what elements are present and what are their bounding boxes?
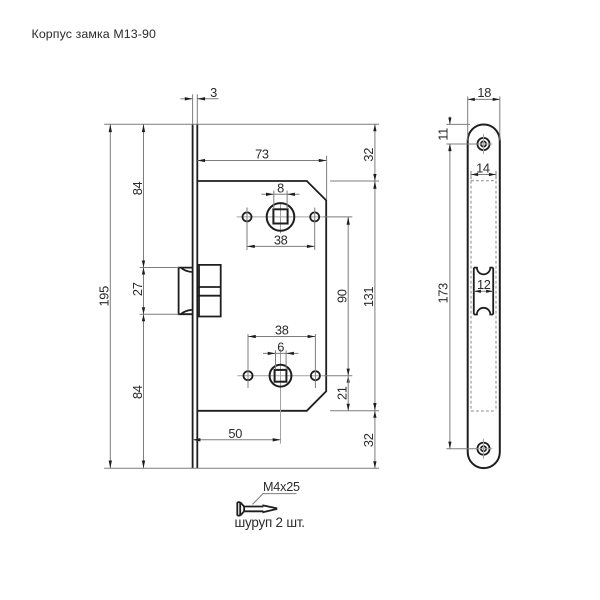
svg-text:38: 38 bbox=[275, 323, 289, 338]
svg-text:195: 195 bbox=[97, 286, 112, 307]
svg-text:18: 18 bbox=[477, 85, 491, 100]
svg-text:12: 12 bbox=[477, 277, 491, 292]
svg-text:11: 11 bbox=[435, 128, 450, 141]
svg-text:шуруп 2 шт.: шуруп 2 шт. bbox=[235, 515, 305, 530]
svg-text:21: 21 bbox=[335, 386, 350, 400]
svg-text:М4х25: М4х25 bbox=[263, 480, 300, 494]
svg-text:14: 14 bbox=[476, 161, 490, 176]
svg-text:173: 173 bbox=[435, 283, 450, 304]
svg-text:27: 27 bbox=[130, 282, 145, 296]
svg-text:3: 3 bbox=[210, 85, 217, 100]
svg-text:Корпус замка М13-90: Корпус замка М13-90 bbox=[32, 27, 156, 41]
svg-text:73: 73 bbox=[255, 147, 269, 162]
svg-text:84: 84 bbox=[130, 182, 145, 196]
svg-text:90: 90 bbox=[335, 289, 350, 303]
svg-text:32: 32 bbox=[361, 433, 376, 447]
svg-text:38: 38 bbox=[274, 233, 288, 248]
svg-text:84: 84 bbox=[130, 385, 145, 399]
svg-text:6: 6 bbox=[277, 340, 284, 355]
svg-text:131: 131 bbox=[361, 287, 376, 308]
svg-text:32: 32 bbox=[361, 148, 376, 162]
svg-text:50: 50 bbox=[228, 426, 242, 441]
svg-text:8: 8 bbox=[277, 180, 284, 195]
